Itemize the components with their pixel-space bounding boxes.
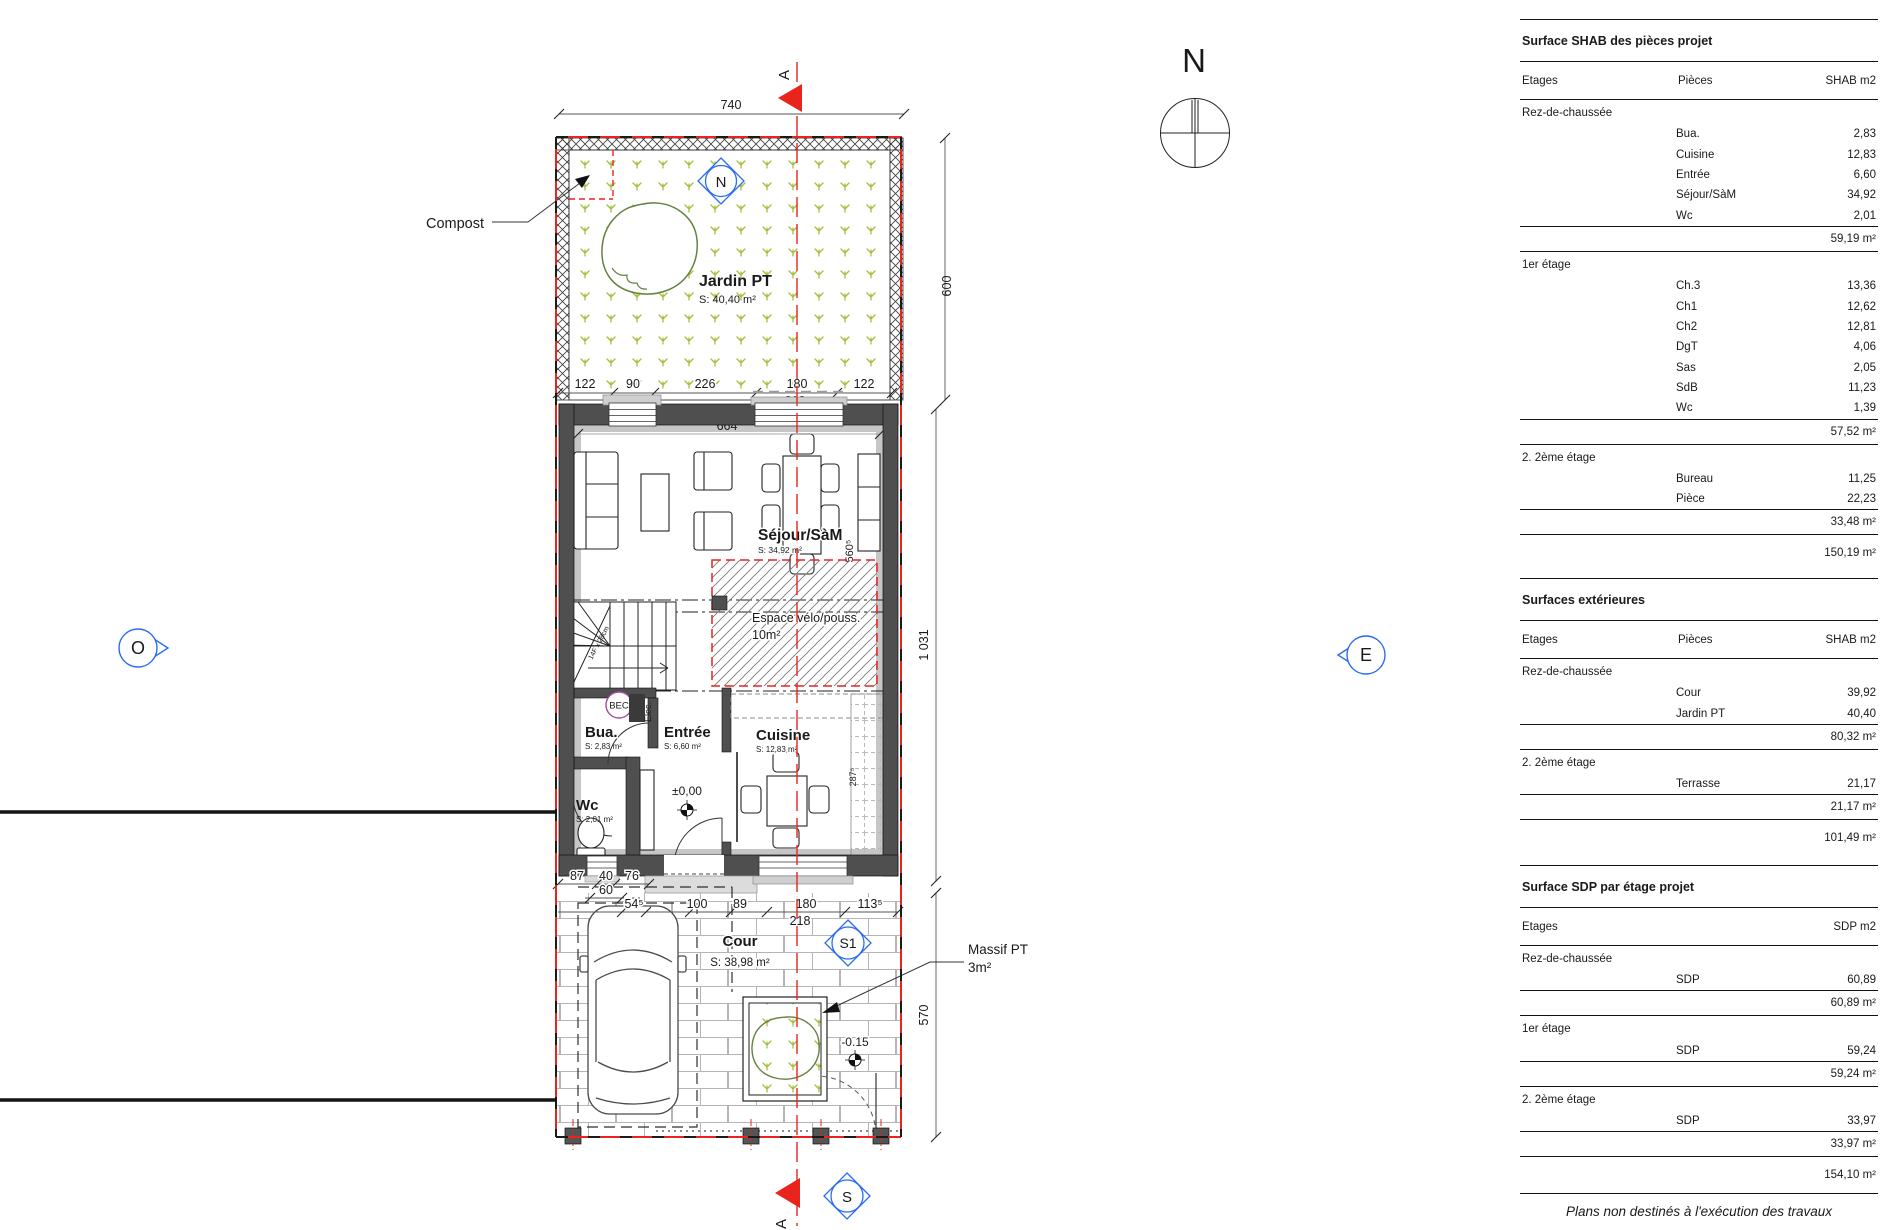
room-area-value: 2,05	[1854, 362, 1878, 374]
table-title: Surface SHAB des pièces projet	[1520, 20, 1878, 62]
floor-group-label: 1er étage	[1520, 252, 1878, 276]
entree-room-label: Entrée	[664, 724, 711, 741]
room-name: SDP	[1676, 974, 1847, 986]
column-header: SDP m2	[1833, 921, 1878, 933]
room-name: Ch.3	[1676, 280, 1847, 292]
s1-marker-label: S1	[839, 935, 856, 951]
cuisine-area-label: S: 12,83 m²	[756, 745, 798, 754]
compost-label: Compost	[426, 216, 484, 232]
post	[712, 596, 727, 610]
table-total: 101,49 m²	[1520, 820, 1878, 856]
table-row: SDP59,24	[1520, 1040, 1878, 1060]
svg-text:218: 218	[790, 914, 811, 928]
room-area-value: 11,23	[1848, 382, 1878, 394]
elec-label: Elec.	[643, 702, 653, 722]
room-name: SdB	[1676, 382, 1848, 394]
room-area-value: 59,24	[1847, 1045, 1878, 1057]
svg-text:76: 76	[625, 869, 639, 883]
wc-area-label: S: 2,01 m²	[576, 815, 613, 824]
room-area-value: 6,60	[1854, 169, 1878, 181]
svg-text:87: 87	[570, 869, 584, 883]
disclaimer-note: Plans non destinés à l'exécution des tra…	[1520, 1204, 1878, 1219]
table-row: Bua.2,83	[1520, 124, 1878, 144]
table-row: Wc2,01	[1520, 206, 1878, 226]
room-name: Terrasse	[1676, 778, 1847, 790]
column-header: Pièces	[1678, 75, 1826, 87]
room-name: Cuisine	[1676, 149, 1847, 161]
room-name: Sas	[1676, 362, 1854, 374]
svg-text:60: 60	[599, 883, 613, 897]
svg-text:122: 122	[854, 377, 875, 391]
table-row: SDP33,97	[1520, 1111, 1878, 1131]
table-title: Surface SDP par étage projet	[1520, 866, 1878, 908]
section-label-bottom: A	[773, 1219, 790, 1229]
room-name: Cour	[1676, 687, 1847, 699]
south-marker-label: S	[842, 1189, 852, 1206]
sofa	[574, 452, 618, 549]
floor-group-label: 1er étage	[1520, 1016, 1878, 1040]
sejour-area-label: S: 34,92 m²	[758, 545, 802, 555]
north-marker-label: N	[716, 174, 727, 191]
room-area-value: 39,92	[1847, 687, 1878, 699]
floor-subtotal: 21,17 m²	[1520, 794, 1878, 820]
section-arrow-bottom	[775, 1178, 800, 1208]
svg-text:180: 180	[796, 897, 817, 911]
wc-room-label: Wc	[576, 797, 599, 814]
floor-plan-sheet: N Jardin PT S: 40,40 m² Compost 740 600 …	[0, 0, 1893, 1230]
table-header: EtagesPiècesSHAB m2	[1520, 62, 1878, 100]
svg-text:570: 570	[917, 1005, 931, 1026]
floor-group-label: 2. 2ème étage	[1520, 445, 1878, 469]
svg-text:89: 89	[733, 897, 747, 911]
toilet	[577, 818, 605, 858]
room-name: Jardin PT	[1676, 708, 1847, 720]
column-header: Etages	[1522, 75, 1678, 87]
east-marker-label: E	[1360, 645, 1372, 665]
floor-subtotal: 33,48 m²	[1520, 509, 1878, 535]
west-marker-label: O	[131, 638, 145, 658]
room-name: Pièce	[1676, 493, 1847, 505]
table-row: Pièce22,23	[1520, 489, 1878, 509]
table-header: EtagesSDP m2	[1520, 908, 1878, 946]
table-row: SdB11,23	[1520, 378, 1878, 398]
svg-text:90: 90	[626, 377, 640, 391]
svg-text:54⁵: 54⁵	[624, 897, 643, 911]
hall-cabinet	[640, 770, 654, 850]
room-area-value: 2,01	[1854, 210, 1878, 222]
dim-sejour-width: 560⁵	[844, 540, 856, 563]
room-area-value: 12,83	[1847, 149, 1878, 161]
table-row: Entrée6,60	[1520, 165, 1878, 185]
floor-subtotal: 80,32 m²	[1520, 724, 1878, 750]
table-row: Jardin PT40,40	[1520, 703, 1878, 723]
table-row: Terrasse21,17	[1520, 774, 1878, 794]
bua-room-label: Bua.	[585, 724, 618, 741]
cour-room-label: Cour	[723, 933, 758, 950]
table-row: Cour39,92	[1520, 683, 1878, 703]
bike-zone-area: 10m²	[752, 628, 780, 642]
floor-subtotal: 60,89 m²	[1520, 990, 1878, 1016]
room-area-value: 13,36	[1847, 280, 1878, 292]
table-header: EtagesPiècesSHAB m2	[1520, 621, 1878, 659]
column-header: Etages	[1522, 921, 1678, 933]
sejour-room-label: Séjour/SàM	[758, 527, 842, 544]
room-area-value: 60,89	[1847, 974, 1878, 986]
floor-group-label: 2. 2ème étage	[1520, 750, 1878, 774]
section-arrow-top	[778, 84, 802, 112]
bua-area-label: S: 2,83 m²	[585, 742, 622, 751]
room-name: SDP	[1676, 1045, 1847, 1057]
room-name: DgT	[1676, 341, 1854, 353]
floor-group-label: Rez-de-chaussée	[1520, 946, 1878, 970]
room-name: Séjour/SàM	[1676, 189, 1847, 201]
cuisine-room-label: Cuisine	[756, 727, 810, 744]
column-header: Etages	[1522, 634, 1678, 646]
table-title: Surfaces extérieures	[1520, 579, 1878, 621]
bec-label: BEC	[609, 701, 629, 712]
compass-north-label: N	[1182, 42, 1206, 79]
massif-label: Massif PT	[968, 942, 1028, 957]
garden-tree	[602, 203, 697, 294]
dim-600: 600	[940, 133, 954, 405]
garden-area: N Jardin PT S: 40,40 m²	[556, 138, 903, 400]
coffee-table	[641, 474, 669, 531]
room-area-value: 34,92	[1847, 189, 1878, 201]
table-surface-shab: Surface SHAB des pièces projetEtagesPièc…	[1520, 19, 1878, 571]
table-row: Sas2,05	[1520, 358, 1878, 378]
level-cour: -0.15	[841, 1035, 869, 1049]
entrance-landing	[645, 876, 757, 893]
room-area-value: 12,62	[1847, 301, 1878, 313]
planter-massif	[743, 997, 827, 1101]
floor-group-label: Rez-de-chaussée	[1520, 659, 1878, 683]
staircase	[565, 602, 676, 690]
table-row: Cuisine12,83	[1520, 144, 1878, 164]
room-name: SDP	[1676, 1115, 1847, 1127]
table-row: Ch112,62	[1520, 296, 1878, 316]
dim-570: 570	[917, 888, 941, 1142]
garden-area-label: S: 40,40 m²	[699, 294, 756, 306]
sideboard	[858, 454, 880, 551]
table-total: 150,19 m²	[1520, 535, 1878, 571]
building-ground-floor: Séjour/SàM S: 34,92 m² 560⁵ 664 Espace v…	[559, 392, 898, 893]
floor-subtotal: 59,19 m²	[1520, 226, 1878, 252]
dim-kitchen-width: 287⁵	[848, 767, 858, 786]
room-area-value: 1,39	[1854, 402, 1878, 414]
room-name: Wc	[1676, 402, 1854, 414]
svg-text:100: 100	[687, 897, 708, 911]
room-name: Ch1	[1676, 301, 1847, 313]
floor-subtotal: 59,24 m²	[1520, 1061, 1878, 1087]
table-row: Séjour/SàM34,92	[1520, 185, 1878, 205]
table-surfaces-exterieures: Surfaces extérieuresEtagesPiècesSHAB m2R…	[1520, 578, 1878, 856]
svg-text:40: 40	[599, 869, 613, 883]
garden-room-label: Jardin PT	[699, 273, 772, 290]
compass: N	[1161, 42, 1230, 168]
room-name: Bureau	[1676, 473, 1848, 485]
svg-text:1 031: 1 031	[917, 629, 931, 660]
column-header: SHAB m2	[1826, 75, 1879, 87]
floor-subtotal: 33,97 m²	[1520, 1131, 1878, 1157]
room-area-value: 4,06	[1854, 341, 1878, 353]
table-row: Wc1,39	[1520, 398, 1878, 418]
column-header: SHAB m2	[1826, 634, 1879, 646]
dim-740: 740	[554, 98, 909, 119]
table-row: Ch212,81	[1520, 317, 1878, 337]
section-label-top: A	[776, 70, 793, 80]
room-area-value: 21,17	[1847, 778, 1878, 790]
room-name: Bua.	[1676, 128, 1854, 140]
room-area-value: 22,23	[1847, 493, 1878, 505]
room-name: Wc	[1676, 210, 1854, 222]
room-area-value: 40,40	[1847, 708, 1878, 720]
table-row: DgT4,06	[1520, 337, 1878, 357]
room-name: Ch2	[1676, 321, 1847, 333]
floor-group-label: Rez-de-chaussée	[1520, 100, 1878, 124]
table-row: Bureau11,25	[1520, 469, 1878, 489]
floor-group-label: 2. 2ème étage	[1520, 1087, 1878, 1111]
table-surface-sdp: Surface SDP par étage projetEtagesSDP m2…	[1520, 865, 1878, 1194]
table-row: Ch.313,36	[1520, 276, 1878, 296]
table-total: 154,10 m²	[1520, 1157, 1878, 1193]
column-header: Pièces	[1678, 634, 1826, 646]
room-area-value: 2,83	[1854, 128, 1878, 140]
svg-text:740: 740	[721, 98, 742, 112]
svg-text:122: 122	[575, 377, 596, 391]
bike-zone-label: Espace vélo/pouss.	[752, 611, 860, 625]
table-row: SDP60,89	[1520, 970, 1878, 990]
svg-text:600: 600	[940, 276, 954, 297]
level-entree: ±0,00	[672, 784, 702, 798]
room-name: Entrée	[1676, 169, 1854, 181]
svg-text:226: 226	[695, 377, 716, 391]
floor-subtotal: 57,52 m²	[1520, 419, 1878, 445]
massif-area-label: 3m²	[968, 960, 992, 975]
car	[580, 906, 686, 1114]
cour-area-label: S: 38,98 m²	[710, 957, 770, 969]
room-area-value: 11,25	[1848, 473, 1878, 485]
room-area-value: 12,81	[1847, 321, 1878, 333]
entree-area-label: S: 6,60 m²	[664, 742, 701, 751]
svg-text:113⁵: 113⁵	[857, 897, 882, 911]
dim-1031: 1 031	[917, 404, 941, 886]
room-area-value: 33,97	[1847, 1115, 1878, 1127]
